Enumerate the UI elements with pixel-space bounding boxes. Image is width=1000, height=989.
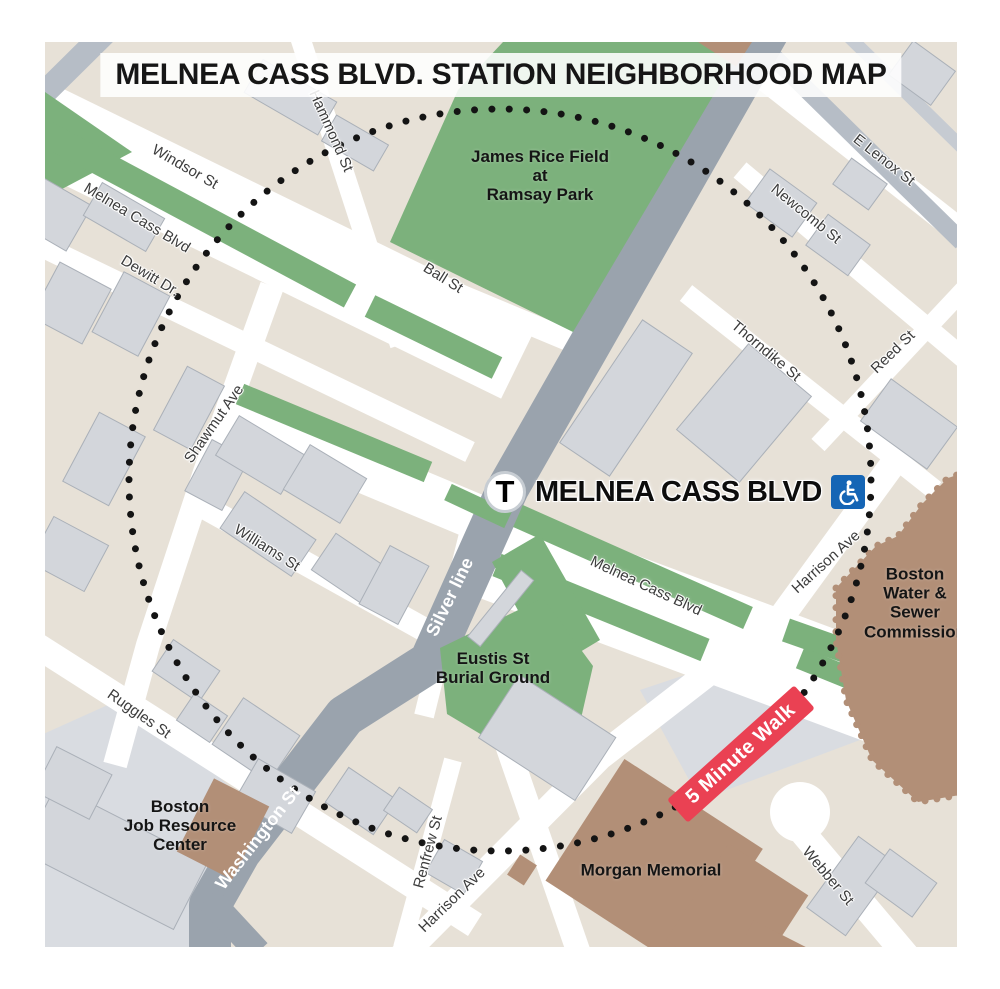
street-label-thorndike: Thorndike St	[728, 317, 804, 385]
street-label-melnea-cass-se: Melnea Cass Blvd	[588, 553, 705, 619]
station-name: MELNEA CASS BLVD	[535, 476, 822, 509]
wheelchair-icon	[831, 475, 865, 509]
station-marker: T MELNEA CASS BLVD	[484, 471, 865, 513]
map-labels: Windsor St Melnea Cass Blvd Dewitt Dr. H…	[45, 42, 957, 947]
street-label-melnea-cass-nw: Melnea Cass Blvd	[81, 180, 193, 257]
street-label-newcomb: Newcomb St	[768, 181, 845, 248]
place-label-eustis: Eustis St Burial Ground	[436, 649, 550, 687]
place-label-ramsay-park: James Rice Field at Ramsay Park	[471, 147, 609, 205]
street-label-renfrew: Renfrew St	[410, 814, 446, 890]
street-label-reed: Reed St	[868, 327, 919, 377]
street-label-williams: Williams St	[231, 521, 303, 575]
street-label-shawmut: Shawmut Ave	[181, 382, 247, 467]
street-label-harrison-ne: Harrison Ave	[789, 527, 864, 597]
mbta-t-logo-icon: T	[484, 471, 526, 513]
street-label-webber: Webber St	[799, 843, 857, 908]
place-label-water-sewer: Boston Water & Sewer Commission	[864, 565, 957, 642]
t-logo-letter: T	[496, 474, 515, 510]
neighborhood-map: Windsor St Melnea Cass Blvd Dewitt Dr. H…	[45, 42, 957, 947]
street-label-dewitt: Dewitt Dr.	[118, 252, 182, 300]
place-label-morgan: Morgan Memorial	[581, 860, 722, 879]
street-label-hammond: Hammond St	[305, 88, 356, 175]
street-label-silver-line: Silver line	[422, 554, 478, 640]
street-label-windsor: Windsor St	[149, 141, 221, 192]
street-label-e-lenox: E Lenox St	[850, 131, 918, 190]
place-label-job-center: Boston Job Resource Center	[124, 797, 236, 855]
street-label-ball: Ball St	[420, 259, 466, 296]
walk-time-badge: 5 Minute Walk	[667, 685, 815, 823]
poster-page: Windsor St Melnea Cass Blvd Dewitt Dr. H…	[0, 0, 1000, 989]
page-title: MELNEA CASS BLVD. STATION NEIGHBORHOOD M…	[100, 53, 901, 97]
street-label-ruggles: Ruggles St	[104, 686, 174, 742]
